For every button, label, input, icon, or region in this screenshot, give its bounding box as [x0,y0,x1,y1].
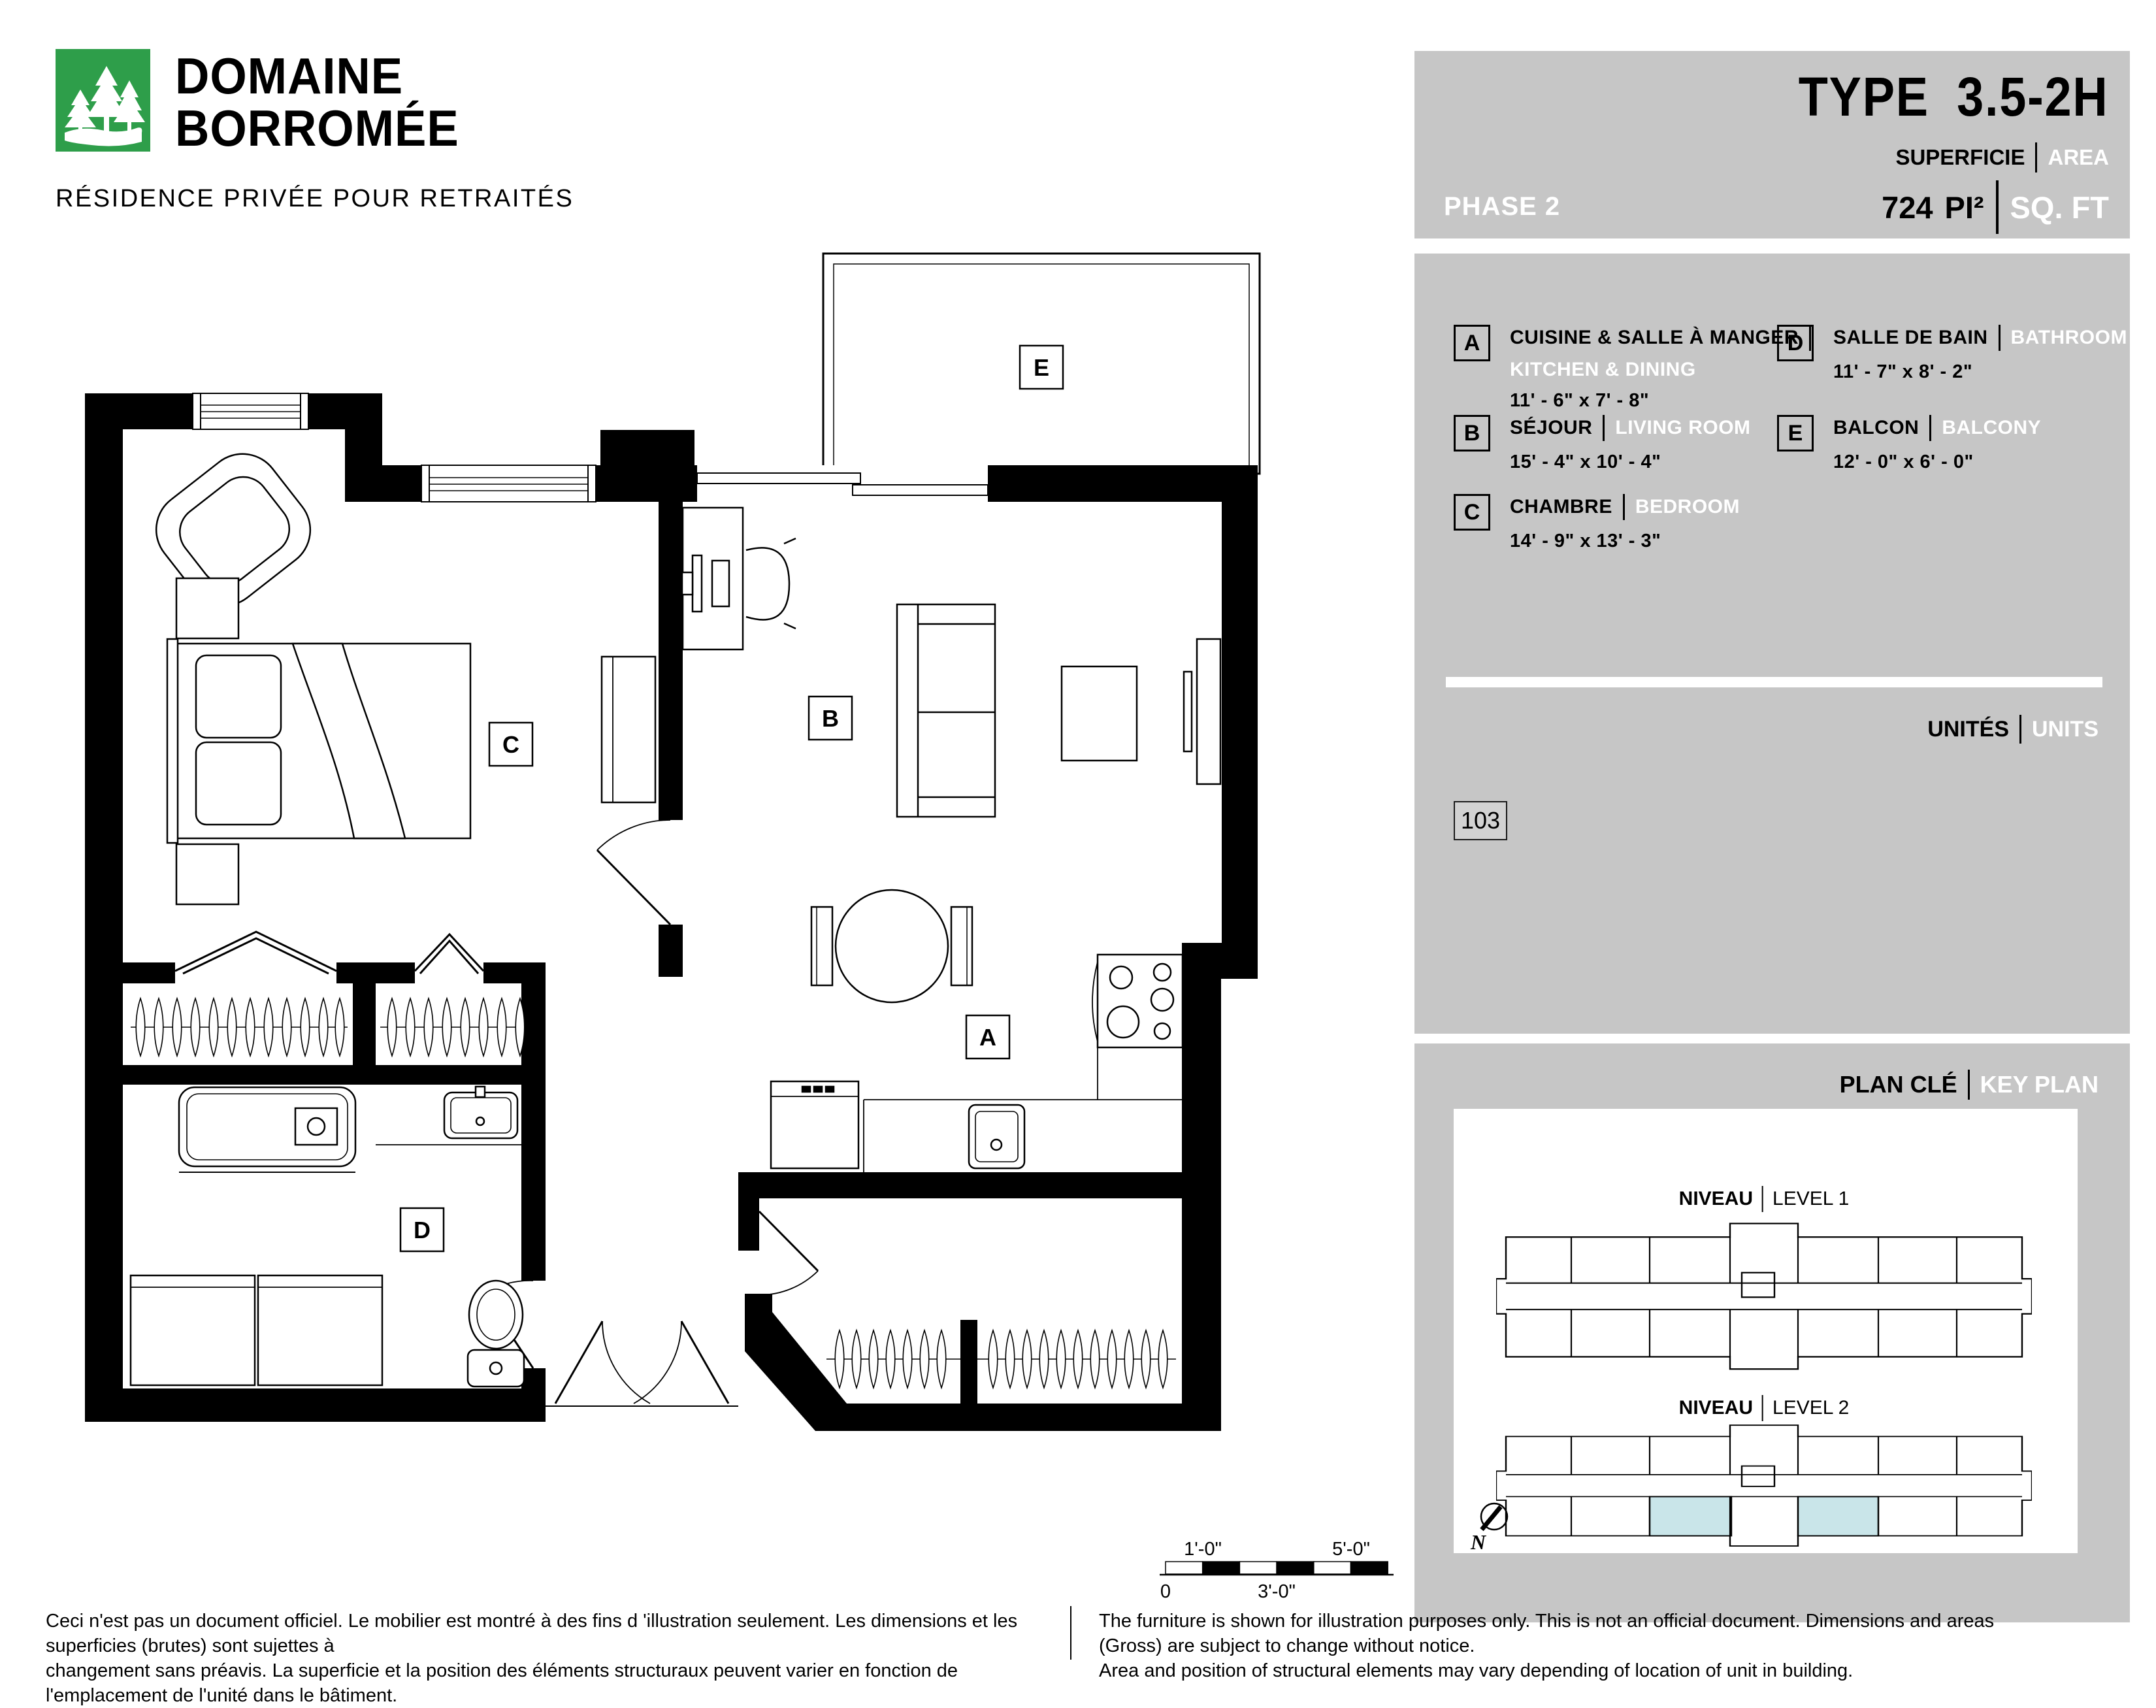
divider-bar [1762,1395,1763,1421]
room-dims: 14' - 9" x 13' - 3" [1510,531,1740,552]
logo-wordmark: DOMAINE BORROMÉE [175,50,480,154]
legend-letter-box: B [1454,415,1490,452]
divider-bar [2019,715,2021,744]
area-unit-en: SQ. FT [2010,189,2109,225]
bathroom-fixtures [131,1087,524,1387]
nightstand [176,844,238,904]
bedroom-furniture [141,438,655,904]
area-value-row: 724 PI² SQ. FT [1882,180,2109,234]
room-label-E: E [1020,346,1063,389]
room-name-fr: SALLE DE BAIN [1833,327,1988,349]
patio-door [697,465,988,502]
divider-bar [1929,415,1931,441]
highlighted-unit [1798,1496,1878,1536]
bedroom-window [193,393,308,429]
logo: DOMAINE BORROMÉE RÉSIDENCE PRIVÉE POUR R… [56,49,150,155]
divider-bar [1996,180,1999,234]
sofa [897,604,995,817]
room-name-fr: BALCON [1833,417,1919,439]
area-unit-fr: PI² [1944,189,1984,225]
room-name-fr: CUISINE & SALLE À MANGER [1510,327,1799,349]
room-dims: 15' - 4" x 10' - 4" [1510,452,1751,473]
units-label-fr: UNITÉS [1927,717,2009,742]
area-value: 724 [1882,189,1933,225]
divider-bar [1603,415,1605,441]
svg-text:5'-0": 5'-0" [1332,1539,1370,1560]
key-plan-label-en: KEY PLAN [1980,1071,2099,1098]
logo-line2: BORROMÉE [175,102,459,154]
desk [682,508,743,649]
svg-text:A: A [979,1024,996,1051]
superficie-row: SUPERFICIE AREA [1895,142,2109,172]
header-panel: PHASE 2 TYPE 3.5-2H SUPERFICIE AREA 724 … [1414,51,2130,238]
superficie-label: SUPERFICIE [1895,145,2025,170]
level1-label: NIVEAU LEVEL 1 [1679,1186,1850,1212]
key-plan-label-fr: PLAN CLÉ [1840,1071,1957,1098]
legend-panel: A CUISINE & SALLE À MANGER KITCHEN & DIN… [1414,254,2130,1034]
disclaimer-fr: Ceci n'est pas un document officiel. Le … [46,1609,1045,1708]
divider-bar [1623,494,1625,520]
living-window [421,465,596,502]
page: { "logo": { "line1": "DOMAINE", "line2":… [0,0,2156,1666]
north-arrow-icon: N [1468,1493,1520,1553]
bathtub [179,1087,355,1172]
level2-label: NIVEAU LEVEL 2 [1679,1395,1850,1421]
room-name-en: LIVING ROOM [1615,417,1750,439]
entry-closet-hangers [826,1330,1176,1388]
footer-divider [1070,1606,1071,1660]
key-plan-level2 [1496,1421,2032,1549]
room-name-en: BALCONY [1942,417,2041,439]
dishwasher [771,1081,858,1168]
room-name-en: KITCHEN & DINING [1510,359,1811,381]
tv-console [1184,639,1220,784]
svg-text:1'-0": 1'-0" [1184,1539,1222,1560]
room-label-C: C [489,723,532,766]
bed [167,639,470,843]
legend-item-living: B SÉJOUR LIVING ROOM 15' - 4" x 10' - 4" [1454,415,1751,473]
type-title: TYPE 3.5-2H [1799,65,2109,129]
legend-item-bedroom: C CHAMBRE BEDROOM 14' - 9" x 13' - 3" [1454,494,1740,552]
logo-line1: DOMAINE [175,50,459,102]
nightstand [176,578,238,638]
room-label-D: D [400,1208,444,1251]
divider-bar [2035,142,2037,172]
divider-bar [1999,325,2001,351]
units-title: UNITÉS UNITS [1927,715,2099,744]
stove [1092,955,1183,1047]
type-word: TYPE [1799,65,1929,129]
room-dims: 12' - 0" x 6' - 0" [1833,452,2041,473]
key-plan-canvas: NIVEAU LEVEL 1 NIVEAU LEVEL 2 [1454,1109,2078,1553]
room-name-fr: CHAMBRE [1510,496,1612,518]
divider-bar [1968,1070,1970,1100]
closet-hangers [131,998,541,1056]
legend-letter-box: C [1454,494,1490,531]
key-plan-title: PLAN CLÉ KEY PLAN [1840,1070,2099,1100]
highlighted-unit [1650,1496,1731,1536]
washer-dryer [131,1275,382,1385]
svg-text:E: E [1034,354,1049,381]
bathroom-sink [376,1087,521,1145]
key-plan-panel: PLAN CLÉ KEY PLAN NIVEAU LEVEL 1 [1414,1043,2130,1622]
type-code: 3.5-2H [1957,65,2109,129]
logo-tagline: RÉSIDENCE PRIVÉE POUR RETRAITÉS [56,185,574,213]
coffee-table [1062,666,1137,761]
svg-text:N: N [1470,1530,1487,1553]
wardrobe [602,657,655,802]
svg-text:C: C [502,731,519,758]
room-label-A: A [966,1015,1009,1059]
unit-number-box: 103 [1454,801,1507,840]
room-name-en: BATHROOM [2011,327,2127,349]
logo-trees-icon [56,49,150,152]
legend-item-balcony: E BALCON BALCONY 12' - 0" x 6' - 0" [1777,415,2041,473]
units-label-en: UNITS [2032,717,2099,742]
svg-text:D: D [414,1217,431,1243]
desk-chair [746,538,796,629]
svg-text:3'-0": 3'-0" [1258,1581,1296,1601]
key-plan-level1 [1496,1219,2032,1372]
divider-bar [1762,1186,1763,1212]
svg-text:0: 0 [1160,1581,1171,1601]
legend-item-bathroom: D SALLE DE BAIN BATHROOM 11' - 7" x 8' -… [1777,325,2127,383]
dining-table [811,890,972,1002]
disclaimer-en: The furniture is shown for illustration … [1099,1609,2053,1683]
legend-letter-box: E [1777,415,1814,452]
legend-letter-box: D [1777,325,1814,361]
section-divider [1446,677,2102,687]
toilet [468,1281,524,1387]
room-name-en: BEDROOM [1635,496,1740,518]
legend-item-kitchen: A CUISINE & SALLE À MANGER KITCHEN & DIN… [1454,325,1811,412]
closet-doors [175,932,483,974]
area-label: AREA [2048,145,2109,170]
floor-plan: E C B A D [65,248,1346,1529]
room-label-B: B [809,697,852,740]
kitchen-sink [969,1105,1024,1168]
scale-bar: 1'-0" 5'-0" 0 3'-0" [1160,1536,1395,1601]
living-furniture [682,508,1220,817]
room-dims: 11' - 6" x 7' - 8" [1510,390,1811,412]
svg-text:B: B [822,705,839,732]
room-name-fr: SÉJOUR [1510,417,1592,439]
legend-letter-box: A [1454,325,1490,361]
room-dims: 11' - 7" x 8' - 2" [1833,361,2127,383]
phase-label: PHASE 2 [1444,192,1560,222]
